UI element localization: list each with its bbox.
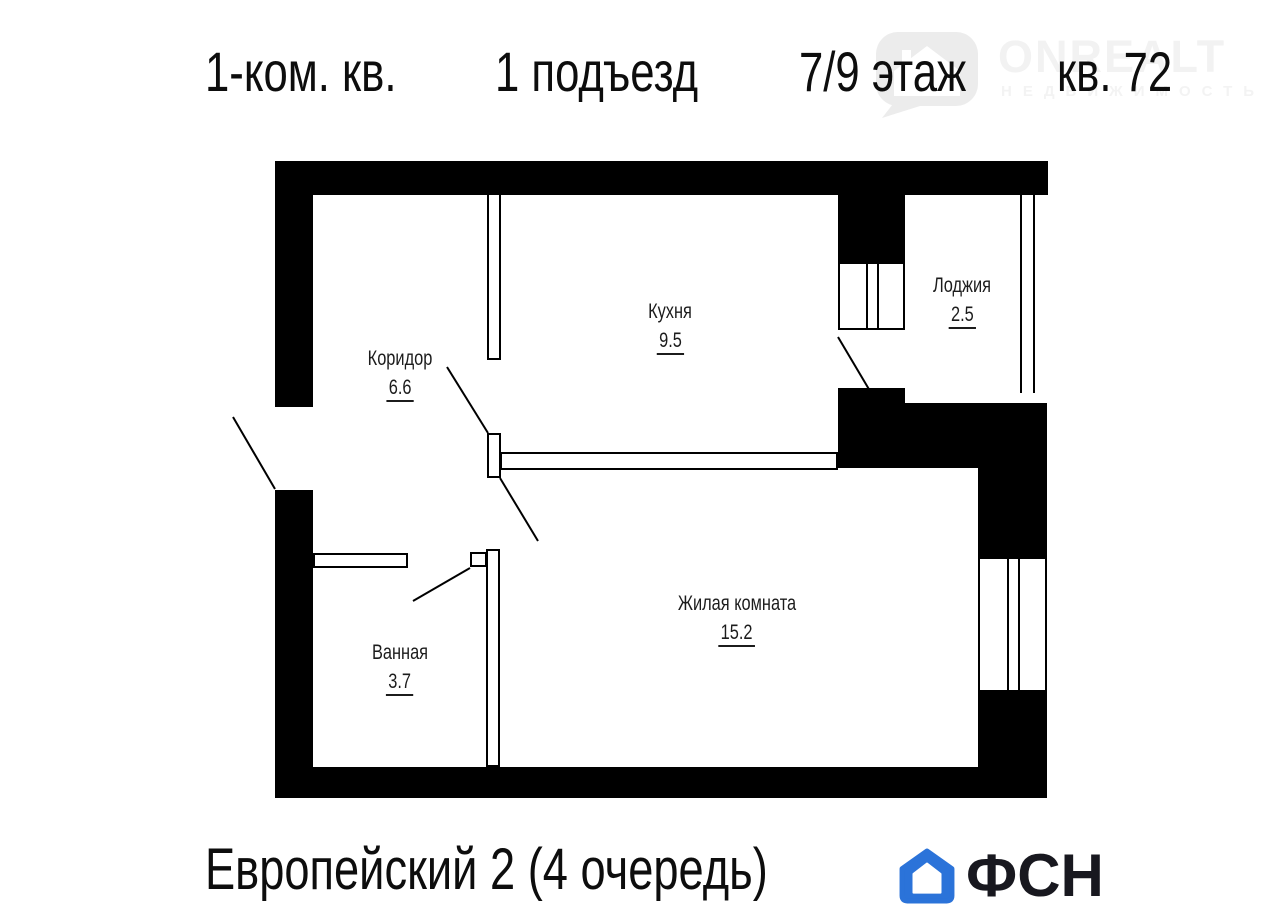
room-label-kitchen: Кухня 9.5 [642,300,698,352]
title-entrance: 1 подъезд [495,44,698,100]
partition-corridor-kitchen [487,193,501,360]
entrance-door-line [233,417,275,489]
window-living-room [978,557,1047,692]
door-jamb-bathroom [470,552,487,567]
wall-left-upper [275,161,313,407]
door-jamb-kitchen [487,433,501,478]
room-name: Жилая комната [678,592,796,616]
room-area: 6.6 [386,376,413,402]
window-loggia-inner-line [1033,195,1035,393]
wall-right-bottom [978,692,1047,798]
window-loggia-outer-line [1020,195,1022,393]
partition-bathroom-top [313,553,408,568]
room-label-living-room: Жилая комната 15.2 [661,592,813,644]
wall-right-middle [978,468,1047,557]
window-mullion [1018,559,1020,690]
window-mullion [1007,559,1009,690]
fsn-logo: ФСН [898,846,1104,906]
title-floor: 7/9 этаж [799,44,966,100]
room-name: Коридор [368,347,433,371]
floor-plan: Кухня 9.5 Лоджия 2.5 Коридор 6.6 Жилая к… [0,0,1280,910]
room-area: 3.7 [386,670,413,696]
loggia-door-line [838,337,870,391]
title-apartment-number: кв. 72 [1057,44,1172,100]
wall-top [275,161,1048,195]
wall-bottom [275,767,1047,798]
partition-bathroom-living [486,549,500,767]
fsn-brand-text: ФСН [966,846,1104,906]
page-title: 1-ком. кв. 1 подъезд 7/9 этаж кв. 72 [205,44,1205,100]
wall-kitchen-loggia-upper [838,193,905,262]
kitchen-door-line [447,367,488,433]
partition-kitchen-living [500,452,838,470]
project-name: Европейский 2 (4 очередь) [205,838,927,902]
room-name: Кухня [648,300,692,324]
wall-left-lower [275,490,313,798]
floorplan-page: { "title": { "parts": ["1-ком. кв.", "1 … [0,0,1280,910]
room-label-corridor: Коридор 6.6 [359,347,442,399]
room-name: Ванная [372,641,428,665]
window-mullion [877,264,879,328]
living-room-door-line [500,478,538,541]
bathroom-door-line [413,568,470,601]
room-label-bathroom: Ванная 3.7 [364,641,436,693]
title-rooms: 1-ком. кв. [205,44,396,100]
window-mullion [866,264,868,328]
wall-loggia-bottom [905,403,1047,468]
room-name: Лоджия [933,274,991,298]
room-area: 9.5 [656,329,683,355]
wall-kitchen-loggia-lower [838,388,905,468]
room-area: 15.2 [719,621,756,647]
fsn-house-icon [898,848,956,904]
room-area: 2.5 [948,303,975,329]
room-label-loggia: Лоджия 2.5 [925,274,999,326]
window-kitchen [838,262,905,330]
